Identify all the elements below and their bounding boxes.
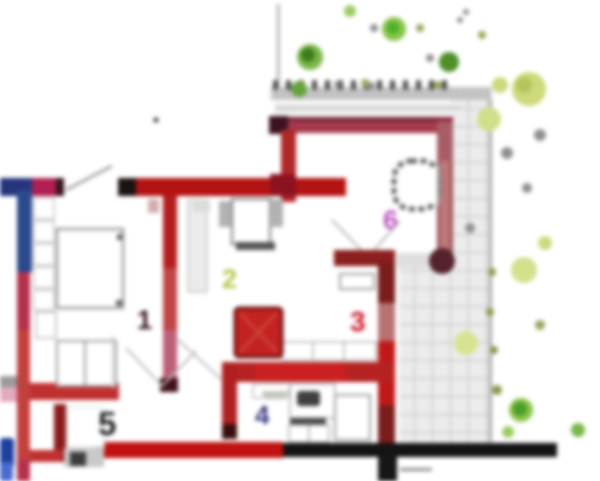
svg-text:5: 5 xyxy=(98,405,116,442)
svg-text:3: 3 xyxy=(350,306,366,337)
svg-text:4: 4 xyxy=(255,400,270,430)
svg-text:2: 2 xyxy=(222,264,237,294)
svg-text:1: 1 xyxy=(137,305,152,335)
